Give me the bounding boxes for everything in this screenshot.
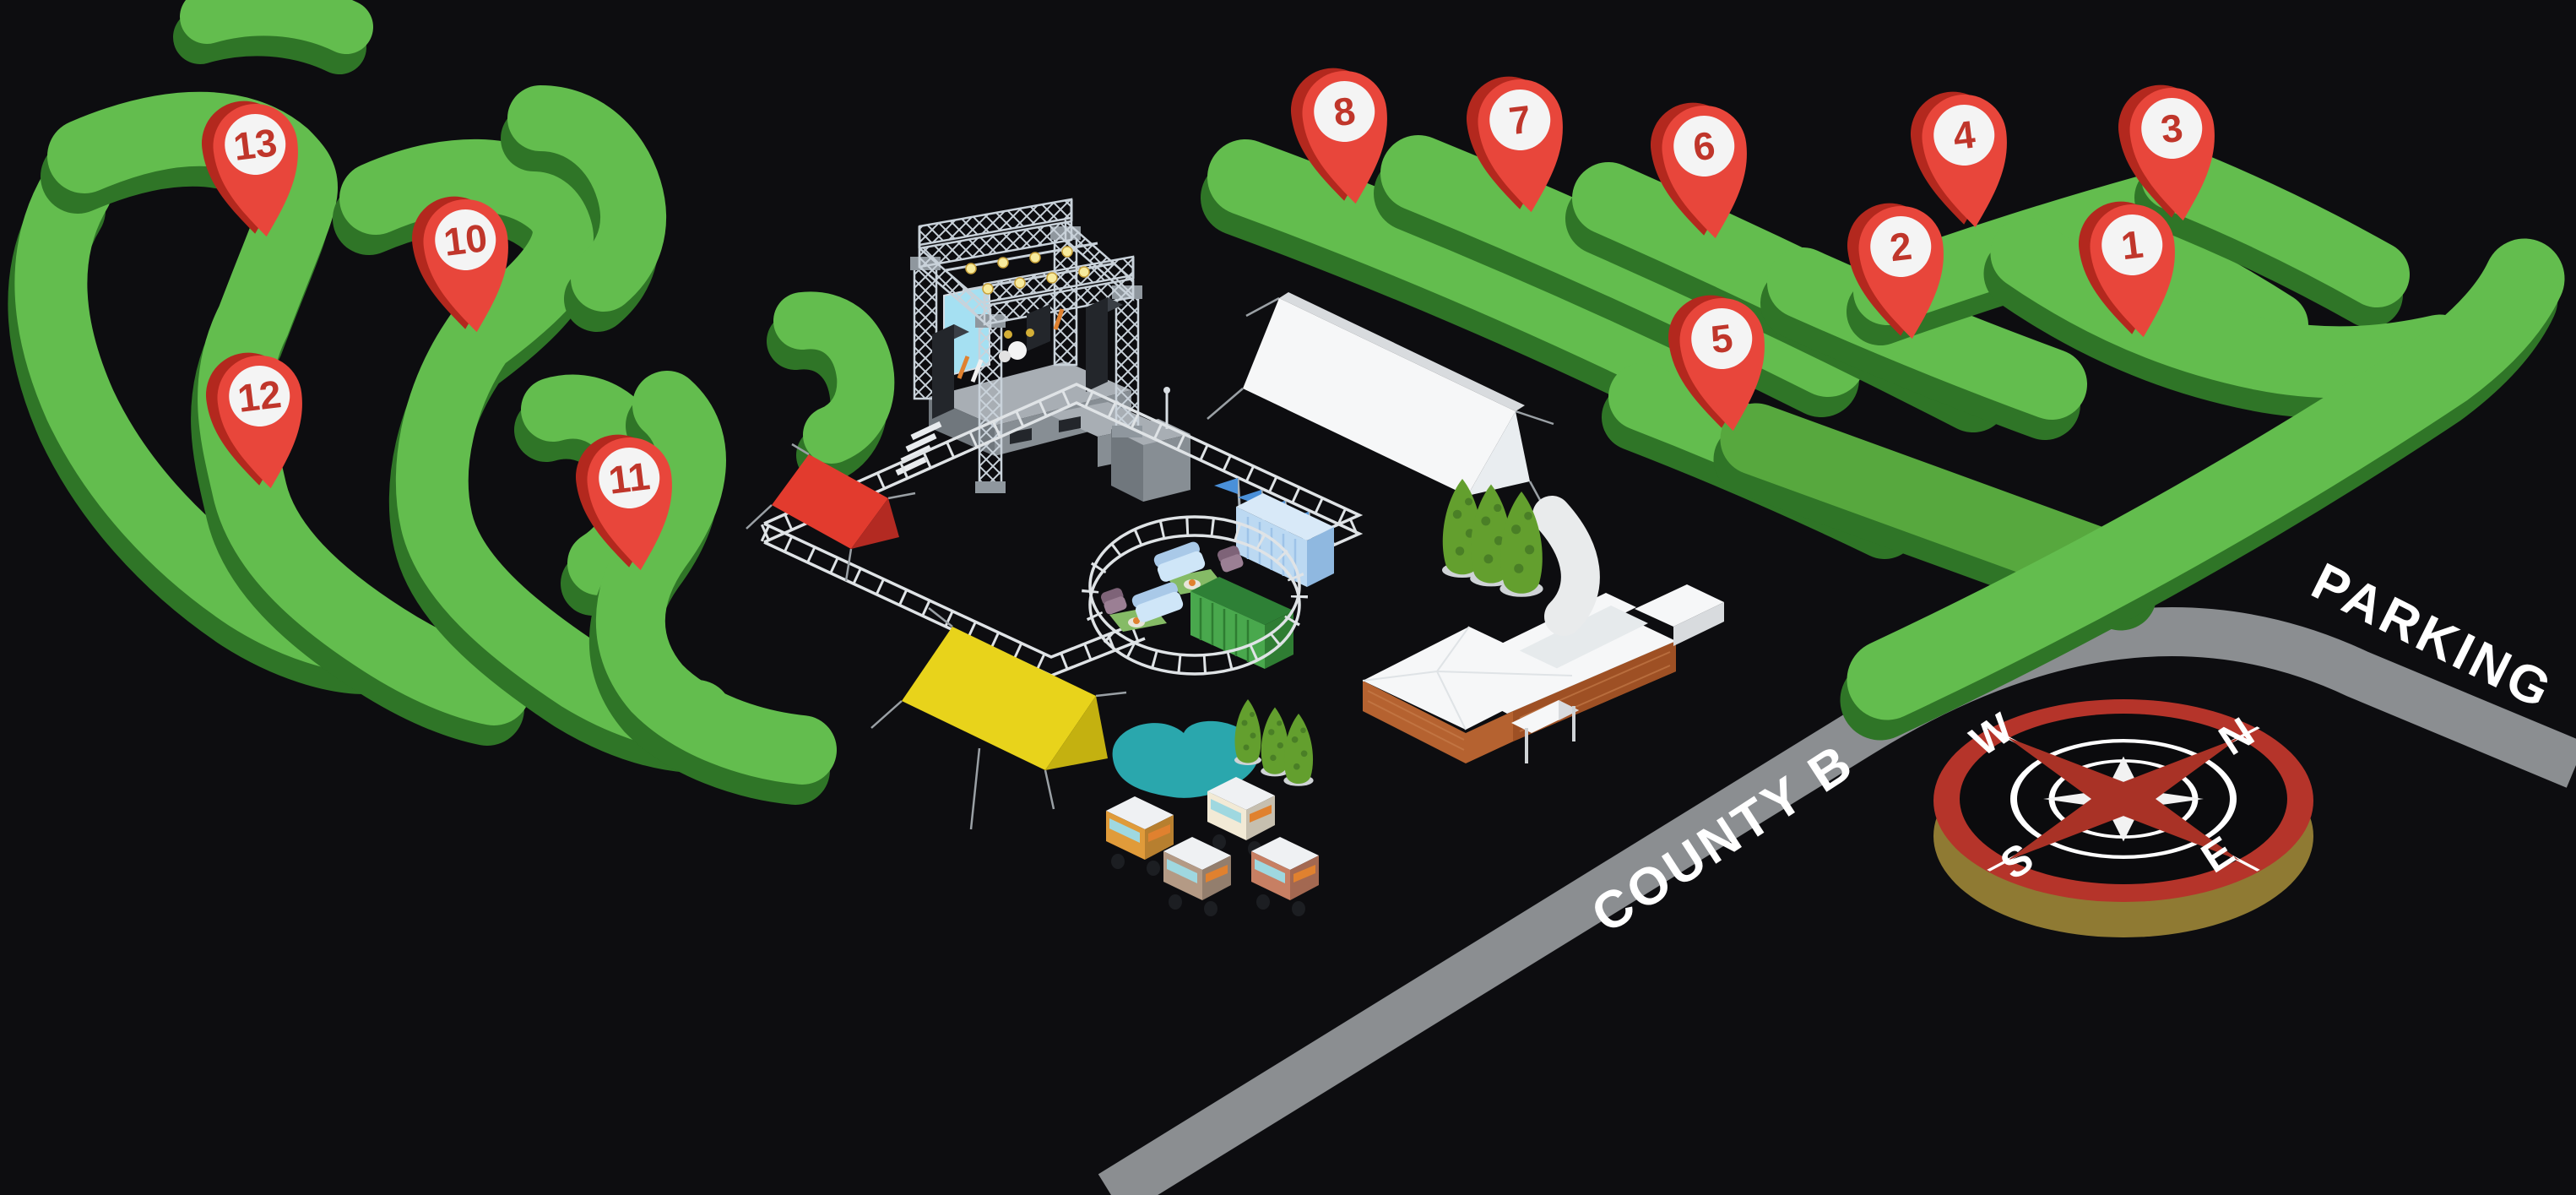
drum-kit (1008, 341, 1027, 360)
pin-label-11: 11 (606, 454, 653, 502)
festival-map: COUNTY B PARKING W N S E (0, 0, 2576, 1195)
pin-label-12: 12 (236, 372, 284, 421)
pin-label-10: 10 (442, 215, 490, 264)
pin-label-13: 13 (231, 120, 279, 169)
field-strip (200, 8, 346, 47)
compass: W N S E (1933, 699, 2313, 937)
